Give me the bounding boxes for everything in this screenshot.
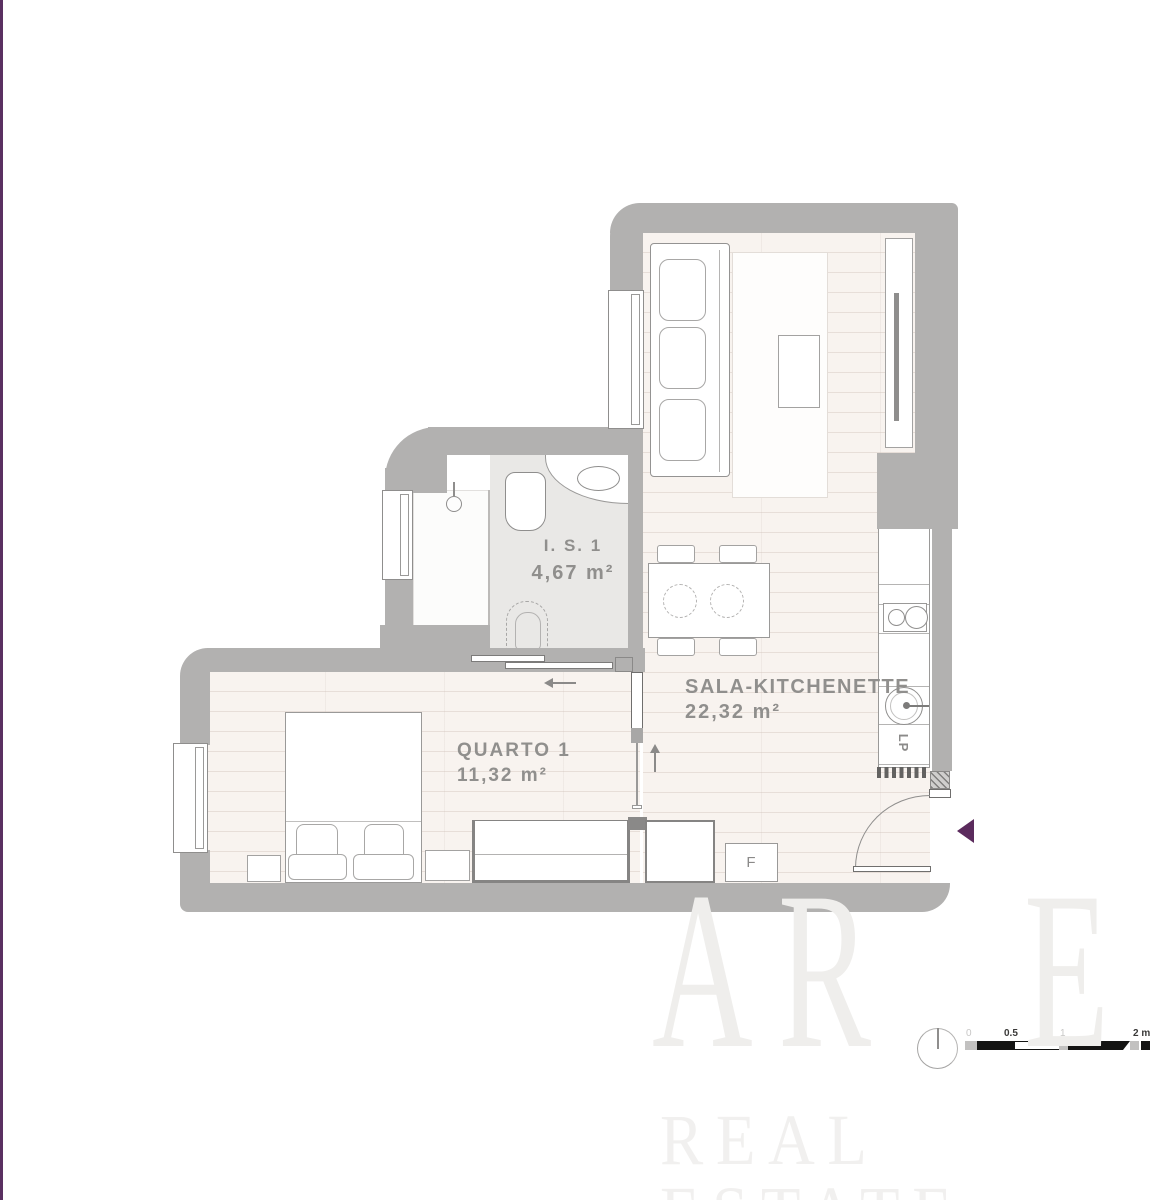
interior-door-tick [632, 805, 642, 809]
label-sala-name: SALA-KITCHENETTE [685, 676, 965, 699]
chair-1 [657, 545, 695, 563]
bath-sink [577, 466, 620, 491]
wall-kitchen-block [877, 453, 958, 529]
sofa [650, 243, 730, 477]
wall-quarto-left-lower [180, 850, 210, 885]
label-quarto-area: 11,32 m² [457, 765, 677, 787]
nightstand-right [425, 850, 470, 881]
chair-2 [719, 545, 757, 563]
shower-glass-line [488, 490, 490, 627]
scale-tick-0: 0 [966, 1028, 972, 1039]
bidet [506, 601, 548, 655]
nightstand-left [247, 855, 281, 882]
bed-bench-2 [353, 854, 414, 880]
burner-small [888, 609, 905, 626]
sofa-front-line [719, 250, 720, 472]
sink-tap-line [906, 705, 929, 707]
sofa-cushion-3 [659, 399, 706, 461]
entry-marker-icon [957, 819, 974, 843]
bidet-inner [515, 612, 541, 650]
slide-door-bar-1 [471, 655, 545, 662]
wall-right-upper [915, 203, 958, 455]
tv-console [885, 238, 913, 448]
wall-bottom [180, 883, 950, 912]
bed-bench-1 [288, 854, 347, 880]
label-is1-name: I. S. 1 [488, 536, 658, 556]
plate-1 [663, 584, 697, 618]
label-sala-area: 22,32 m² [685, 701, 905, 724]
sofa-cushion-1 [659, 259, 706, 321]
kitchen-lp-label: LP [889, 729, 919, 757]
chair-4 [719, 638, 757, 656]
wall-entry-post [930, 771, 950, 789]
north-needle [937, 1028, 939, 1049]
window-quarto-left [173, 743, 208, 853]
brand-edge-line [0, 0, 3, 1200]
scale-tick-1: 1 [1060, 1028, 1066, 1039]
kitchen-grill [877, 767, 928, 778]
entry-door-frame [929, 789, 951, 798]
wardrobe-2 [645, 820, 715, 883]
fridge-label: F [746, 854, 756, 871]
tv-line [894, 293, 899, 421]
wall-right-lower [932, 528, 952, 771]
scale-bar: 0 0.5 1 2 m [963, 1028, 1163, 1052]
coffee-table [778, 335, 820, 408]
wall-bath-left-lower [385, 578, 413, 630]
label-is1-area: 4,67 m² [488, 562, 658, 585]
label-quarto-name: QUARTO 1 [457, 740, 677, 762]
window-sala-left [608, 290, 644, 429]
watermark-line2: REAL ESTATE [660, 1104, 1124, 1200]
slide-door-bar-2 [505, 662, 613, 669]
floorplan-page: LP F [0, 0, 1176, 1200]
toilet [505, 472, 546, 531]
fridge-box: F [725, 843, 778, 882]
slide-door-jamb [615, 657, 633, 672]
scale-tick-05: 0.5 [1004, 1028, 1018, 1039]
chair-3 [657, 638, 695, 656]
scale-bar-track [965, 1041, 1150, 1050]
scale-tick-2m: 2 m [1133, 1028, 1150, 1039]
shower-head-icon [446, 496, 462, 512]
wall-quarto-left-upper [180, 648, 210, 745]
sofa-cushion-2 [659, 327, 706, 389]
burner-large [905, 606, 928, 629]
shower-head-line [453, 482, 455, 496]
wardrobe-shelf-line [475, 854, 627, 855]
wall-bath-left-upper [385, 468, 413, 492]
window-bath-left [382, 490, 413, 580]
wall-sala-top [610, 203, 958, 233]
slide-arrow-line [552, 682, 576, 684]
entry-door-leaf [853, 866, 931, 872]
plate-2 [710, 584, 744, 618]
slide-arrow-head-icon [544, 678, 553, 688]
wardrobe-main [472, 820, 630, 883]
bed-blanket-line [286, 821, 421, 822]
wall-bath-top [428, 427, 643, 455]
